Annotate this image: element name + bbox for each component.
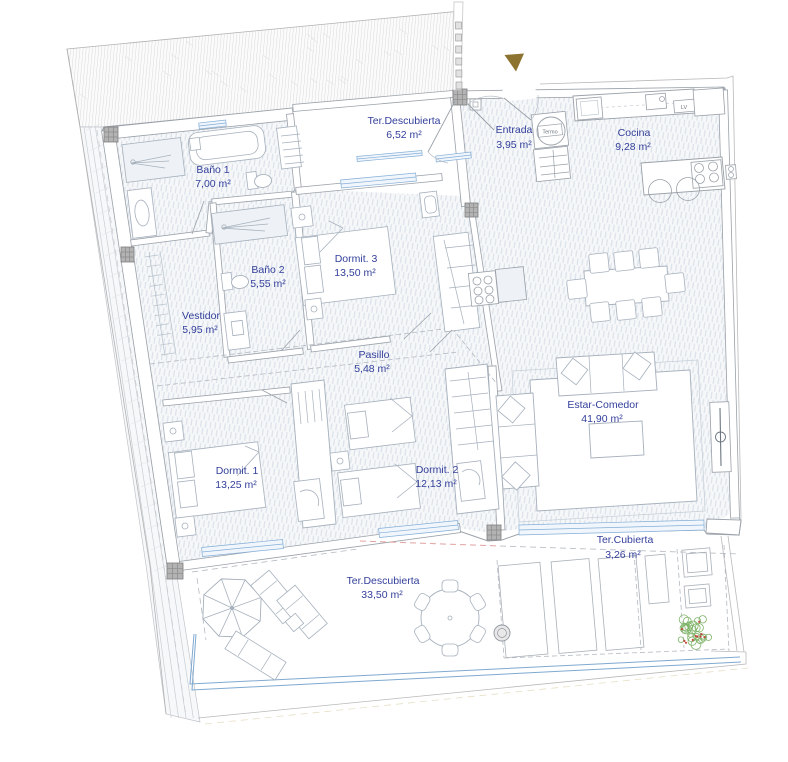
svg-text:13,25 m²: 13,25 m² <box>215 479 257 491</box>
svg-text:Termo: Termo <box>542 130 557 136</box>
svg-text:33,50 m²: 33,50 m² <box>361 589 403 601</box>
svg-text:Vestidor: Vestidor <box>182 310 220 322</box>
svg-text:Baño 2: Baño 2 <box>251 264 284 276</box>
svg-text:Dormit. 1: Dormit. 1 <box>216 465 259 477</box>
svg-text:Ter.Descubierta: Ter.Descubierta <box>347 575 420 587</box>
svg-text:Estar-Comedor: Estar-Comedor <box>567 399 639 411</box>
svg-text:LV: LV <box>681 105 688 111</box>
svg-text:Baño 1: Baño 1 <box>196 164 229 176</box>
svg-text:Ter.Descubierta: Ter.Descubierta <box>368 115 441 127</box>
svg-text:13,50 m²: 13,50 m² <box>334 267 376 279</box>
svg-text:12,13 m²: 12,13 m² <box>415 478 457 490</box>
svg-text:Dormit. 2: Dormit. 2 <box>416 464 459 476</box>
svg-text:5,95 m²: 5,95 m² <box>182 324 218 336</box>
svg-text:Dormit. 3: Dormit. 3 <box>335 253 378 265</box>
svg-text:Entrada: Entrada <box>496 124 533 136</box>
svg-text:Pasillo: Pasillo <box>359 349 390 361</box>
svg-text:41,90 m²: 41,90 m² <box>581 413 623 425</box>
svg-text:7,00 m²: 7,00 m² <box>195 178 231 190</box>
svg-text:Cocina: Cocina <box>618 127 651 139</box>
svg-text:3,26 m²: 3,26 m² <box>605 549 641 561</box>
svg-text:3,95 m²: 3,95 m² <box>496 139 532 151</box>
svg-text:9,28 m²: 9,28 m² <box>615 141 651 153</box>
svg-text:6,52 m²: 6,52 m² <box>386 129 422 141</box>
svg-text:Ter.Cubierta: Ter.Cubierta <box>597 534 654 546</box>
svg-text:5,55 m²: 5,55 m² <box>250 278 286 290</box>
svg-text:5,48 m²: 5,48 m² <box>354 363 390 375</box>
